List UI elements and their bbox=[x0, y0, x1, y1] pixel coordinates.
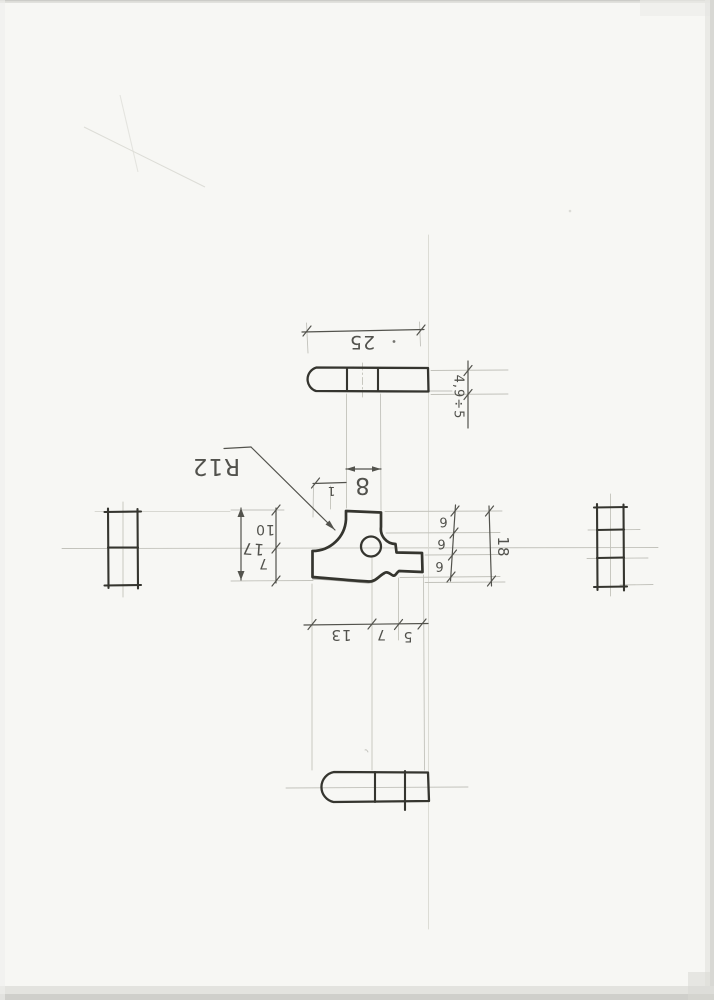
leader-line bbox=[224, 447, 251, 449]
dim-bottom-seg-1: 13 bbox=[330, 626, 351, 644]
arrowhead bbox=[346, 466, 355, 472]
top-view-outline bbox=[308, 368, 429, 392]
scan-artifacts bbox=[0, 0, 714, 1000]
paper-crease bbox=[120, 95, 138, 172]
dim-right-step-3: 6 bbox=[434, 558, 443, 573]
dim-right-total: 18 bbox=[494, 536, 512, 557]
top-view bbox=[308, 368, 429, 392]
arrowhead bbox=[372, 466, 381, 472]
dim-tab-offset: 1 bbox=[327, 484, 336, 498]
dim-top-thickness: 4,9÷5 bbox=[451, 375, 466, 420]
bottom-view bbox=[321, 771, 429, 810]
centerline bbox=[286, 787, 468, 788]
hole bbox=[361, 537, 381, 557]
arrowhead bbox=[238, 571, 245, 580]
pencil-mark bbox=[365, 750, 368, 752]
dim-fillet-radius: R12 bbox=[192, 453, 240, 479]
dim-left-lower: 7 bbox=[258, 555, 268, 571]
pencil-overdraw bbox=[313, 574, 384, 583]
dim-left-upper: 10 bbox=[255, 521, 275, 537]
leader-line bbox=[251, 447, 335, 530]
dimension-line bbox=[489, 506, 492, 586]
dim-bottom-seg-3: 5 bbox=[403, 628, 413, 644]
dimensions: 25 4,9÷5 R12 8 1 17 10 7 bbox=[192, 325, 512, 644]
dimension-line bbox=[304, 624, 428, 626]
paper-crease bbox=[84, 127, 205, 187]
drawing-sheet: 25 4,9÷5 R12 8 1 17 10 7 bbox=[0, 0, 714, 1000]
dim-bottom-seg-2: 7 bbox=[376, 626, 386, 642]
arrowhead bbox=[238, 508, 245, 517]
scanned-paper-sheet: 25 4,9÷5 R12 8 1 17 10 7 bbox=[0, 0, 714, 1000]
dimension-line bbox=[313, 483, 346, 484]
pencil-dot bbox=[393, 340, 396, 343]
dim-right-step-2: 6 bbox=[436, 536, 445, 551]
dim-right-step-1: 6 bbox=[438, 514, 447, 529]
dim-top-length: 25 bbox=[349, 331, 375, 353]
dim-tab-width: 8 bbox=[354, 472, 370, 498]
